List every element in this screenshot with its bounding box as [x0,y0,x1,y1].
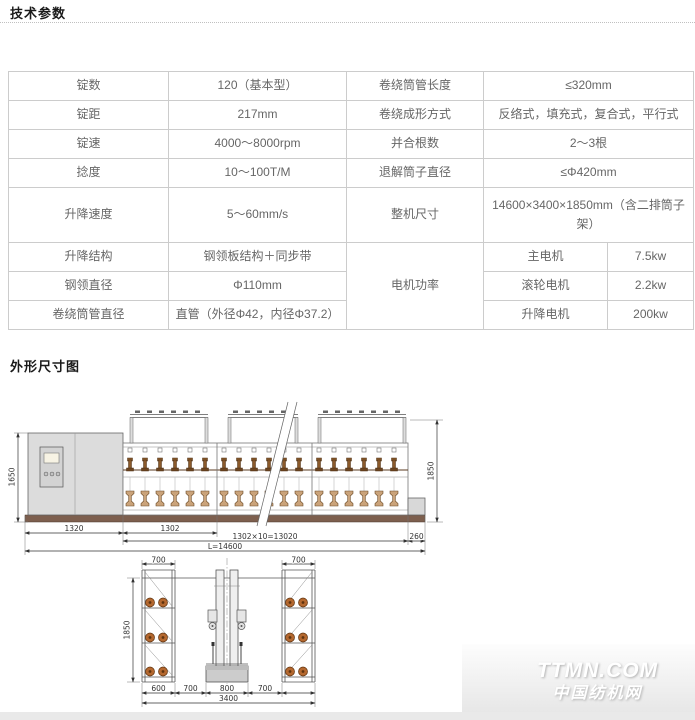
spec-label: 整机尺寸 [347,188,484,243]
spec-value: 200kw [608,301,694,330]
dim-b4-700: 700 [258,684,273,693]
spec-label-motor-power: 电机功率 [347,243,484,330]
dim-b3-800: 800 [220,684,235,693]
dim-height-1650: 1650 [8,467,17,486]
control-button [56,472,60,476]
spec-value: 2～3根 [484,130,694,159]
spec-value: 反络式，填充式，复合式，平行式 [484,101,694,130]
dim-sections-13020: 1302×10=13020 [232,532,297,541]
dim-total-L14600: L=14600 [208,542,243,551]
spec-value: 120（基本型） [169,72,347,101]
spec-label: 捻度 [9,159,169,188]
dim-end-260: 260 [409,532,424,541]
end-view-drawing: 700 700 1850 600 700 800 700 [110,556,360,716]
spec-sublabel: 主电机 [484,243,608,272]
specs-table: 锭数 120（基本型） 卷绕筒管长度 ≤320mm 锭距 217mm 卷绕成形方… [8,71,694,330]
dim-total-3400: 3400 [219,694,238,703]
spec-value: 钢领板结构＋同步带 [169,243,347,272]
section-title-dimension-drawing: 外形尺寸图 [10,356,80,375]
creel-right [282,570,315,682]
spec-label: 退解筒子直径 [347,159,484,188]
spec-value: 2.2kw [608,272,694,301]
spec-label: 卷绕成形方式 [347,101,484,130]
spec-sublabel: 滚轮电机 [484,272,608,301]
control-screen [44,453,59,463]
dim-height-1850: 1850 [427,461,436,480]
spec-value: Φ110mm [169,272,347,301]
spec-value: ≤320mm [484,72,694,101]
spec-value: ≤Φ420mm [484,159,694,188]
control-button [50,472,54,476]
section-title-tech-params: 技术参数 [10,3,66,22]
dim-top-right-700: 700 [291,556,306,565]
title-divider [0,22,695,23]
machine-side-view: 1650 1850 1320 1302 1302×10=13020 260 L=… [8,402,444,555]
watermark-line1: TTMN.COM [505,658,690,684]
dim-b2-700: 700 [183,684,198,693]
control-cabinet [28,433,123,515]
dim-height-1850-end: 1850 [123,620,132,639]
spec-label: 卷绕筒管长度 [347,72,484,101]
control-button [44,472,48,476]
dim-cabinet-1320: 1320 [64,524,83,533]
dim-top-left-700: 700 [151,556,166,565]
spec-label: 卷绕筒管直径 [9,301,169,330]
spec-value: 14600×3400×1850mm（含二排筒子架） [484,188,694,243]
spec-value: 217mm [169,101,347,130]
spec-label: 锭速 [9,130,169,159]
dim-section-1302: 1302 [160,524,179,533]
end-box [408,498,425,515]
watermark: TTMN.COM 中国纺机网 [505,658,690,704]
machine-base [25,515,425,522]
spec-label: 并合根数 [347,130,484,159]
spec-value: 直管（外径Φ42，内径Φ37.2） [169,301,347,330]
spec-label: 升降速度 [9,188,169,243]
side-view-drawing: 1650 1850 1320 1302 1302×10=13020 260 L=… [0,398,480,563]
spec-label: 锭距 [9,101,169,130]
spec-value: 5～60mm/s [169,188,347,243]
creel-left [142,570,175,682]
spec-label: 钢领直径 [9,272,169,301]
spec-sublabel: 升降电机 [484,301,608,330]
spec-value: 10～100T/M [169,159,347,188]
spec-label: 锭数 [9,72,169,101]
spec-value: 4000～8000rpm [169,130,347,159]
spec-value: 7.5kw [608,243,694,272]
machine-end-view: 700 700 1850 600 700 800 700 [123,556,316,707]
watermark-line2: 中国纺机网 [505,684,690,704]
dim-b1-600: 600 [151,684,166,693]
spec-label: 升降结构 [9,243,169,272]
overhead-creel [130,411,406,444]
